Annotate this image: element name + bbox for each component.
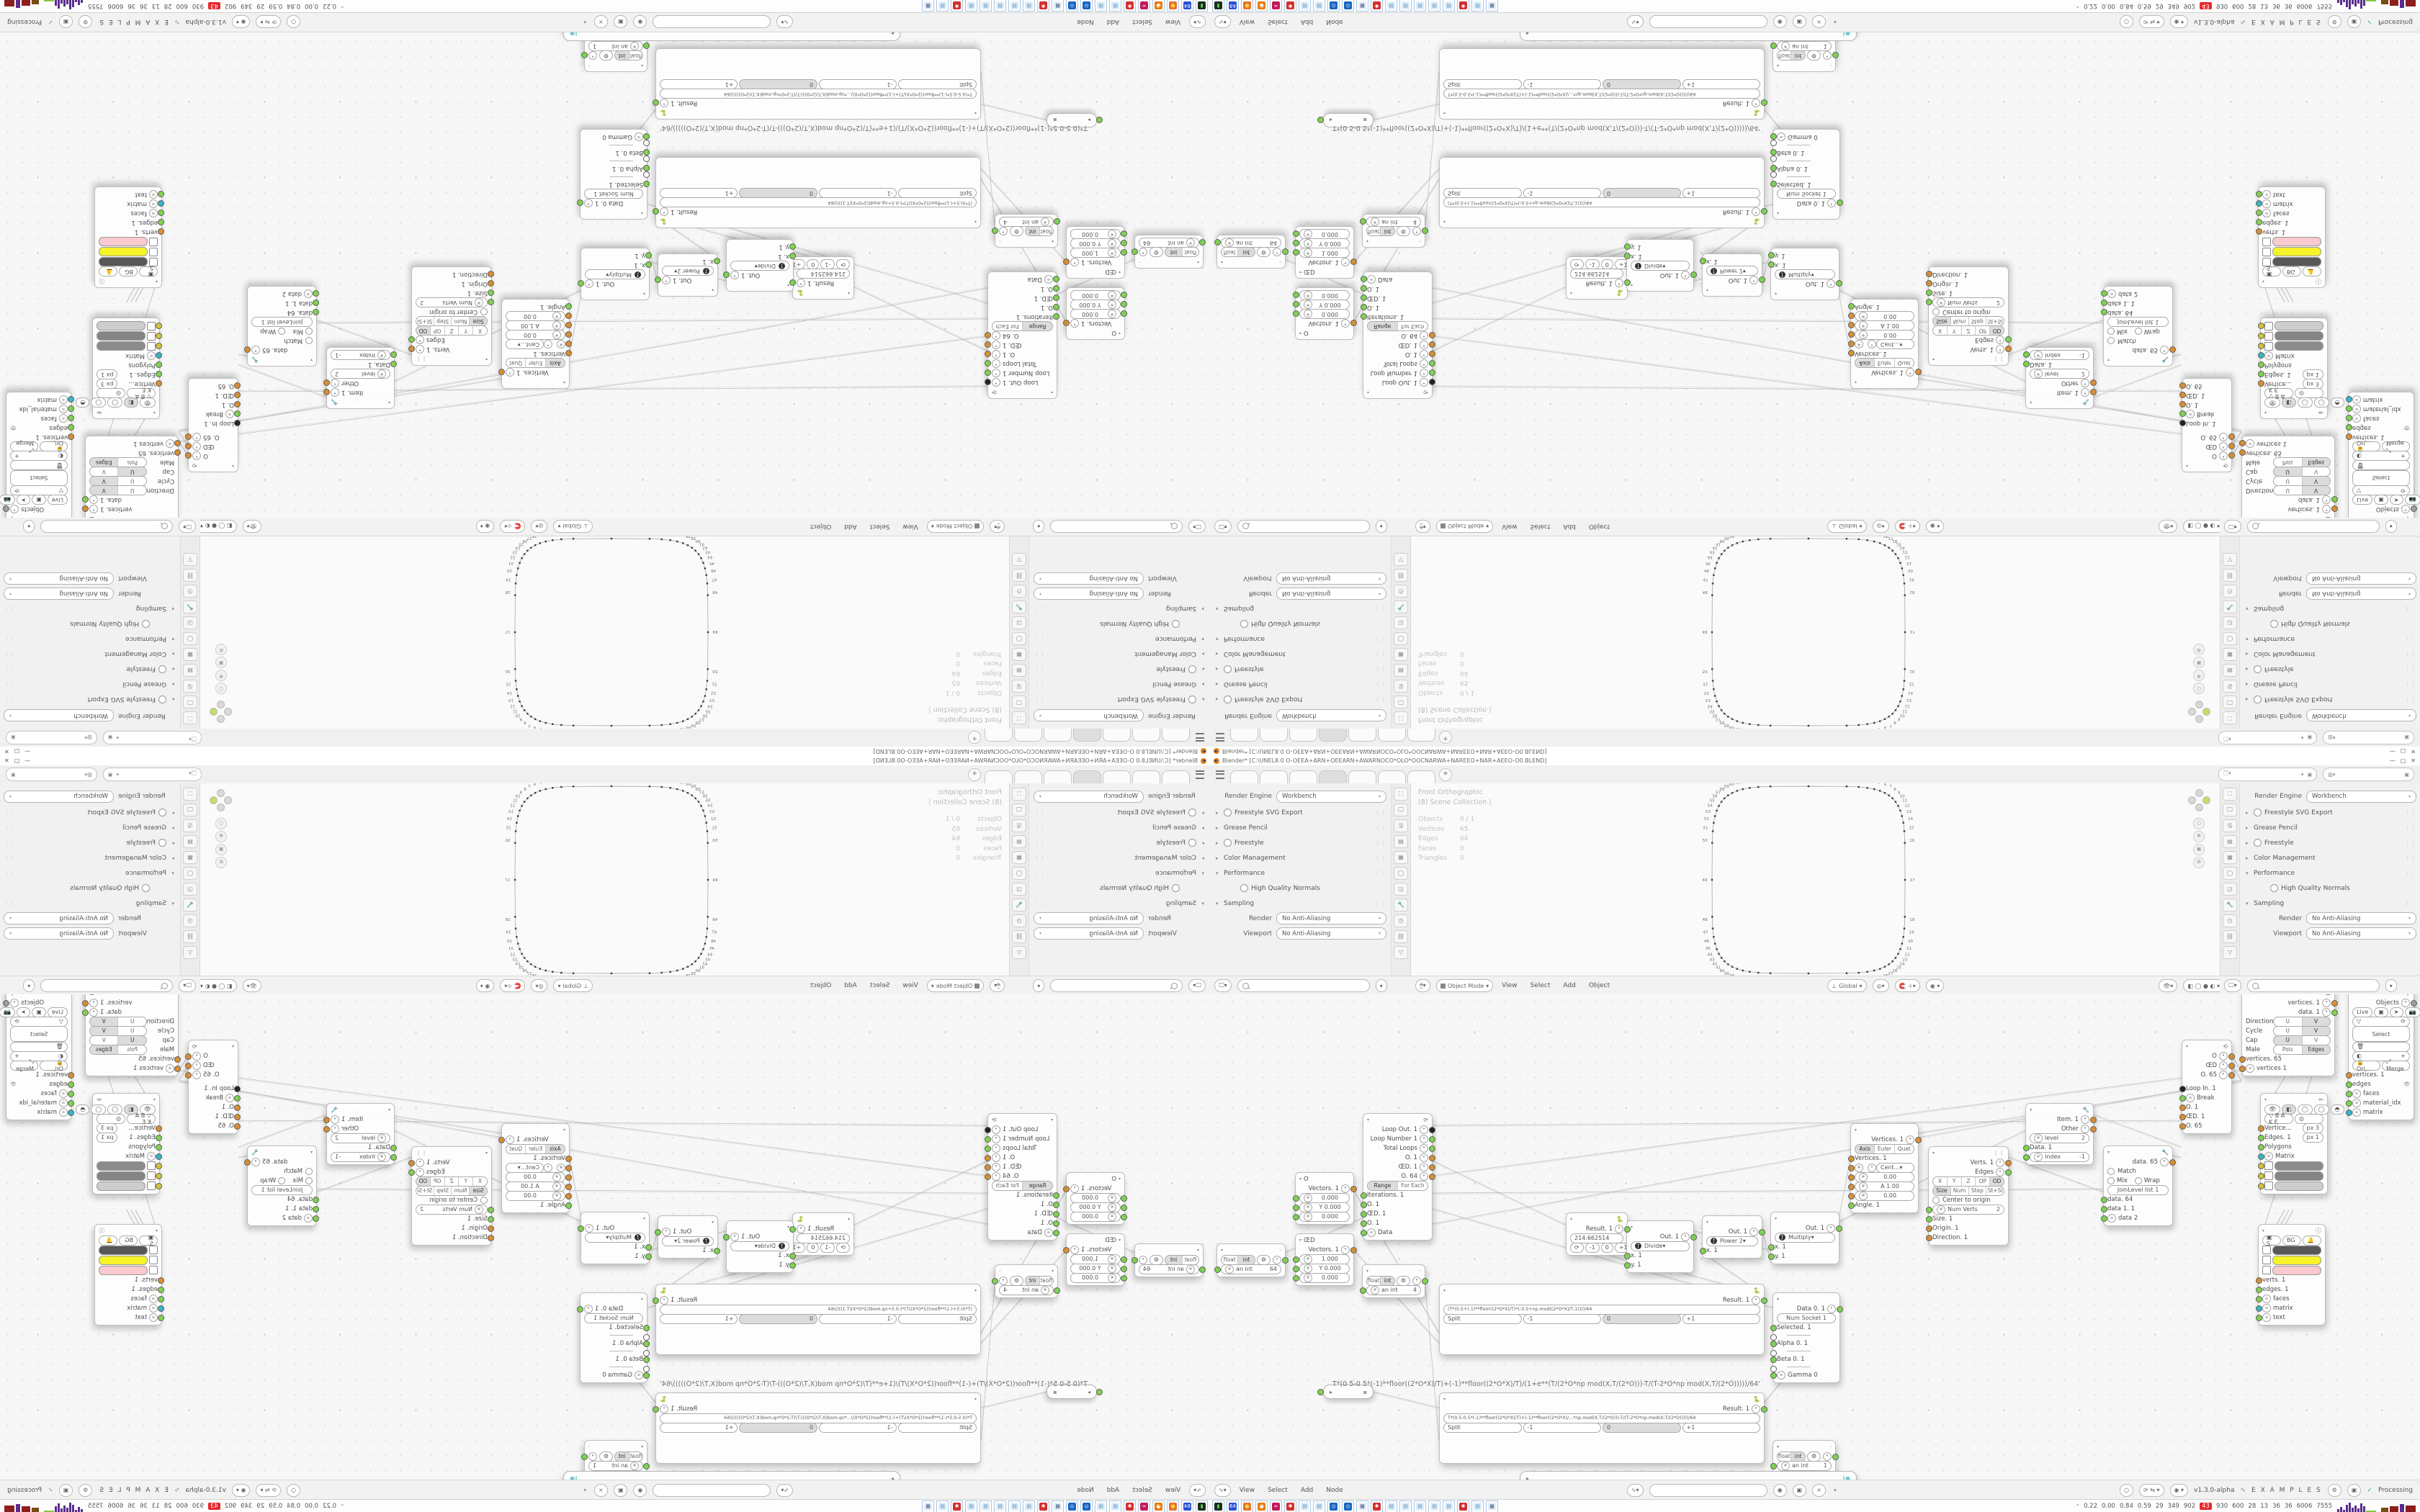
button--s-[interactable]: ▣ S...	[139, 1236, 158, 1246]
taskbar-app-2[interactable]: ●	[1167, 1500, 1179, 1512]
socket[interactable]	[644, 149, 650, 156]
socket-menu-button[interactable]: ▾	[1070, 1246, 1079, 1254]
socket[interactable]	[2346, 405, 2352, 412]
checkbox[interactable]	[1172, 620, 1180, 628]
editor-type-button[interactable]: 🖱▾	[1415, 979, 1430, 992]
antialiasing-dropdown[interactable]: No Anti-Aliasing▾	[1034, 588, 1144, 600]
toggle-option[interactable]: float	[1039, 228, 1053, 236]
socket-menu-button[interactable]: ▾	[416, 1158, 424, 1167]
properties-tab-icon[interactable]: ⛓	[2223, 569, 2237, 582]
button-0[interactable]: 0	[1603, 1314, 1681, 1324]
socket[interactable]	[2258, 1183, 2264, 1189]
socket-menu-button[interactable]: ▾	[1823, 1452, 1832, 1461]
socket-menu-button[interactable]: ▾	[1996, 1158, 2004, 1167]
vector-component-field[interactable]: #Y 0.000	[1299, 239, 1350, 249]
socket[interactable]	[2346, 424, 2352, 431]
button[interactable]: JoinLevel list 1	[251, 1185, 313, 1195]
checkbox[interactable]	[1932, 1197, 1940, 1204]
toggle-option[interactable]: X	[472, 1177, 487, 1186]
socket[interactable]	[644, 156, 650, 162]
vector-component-field[interactable]: #0.000	[1070, 310, 1121, 320]
toggle-option[interactable]: float	[1222, 1256, 1238, 1264]
toggle-option[interactable]: OD	[416, 1177, 430, 1186]
checkbox[interactable]	[1224, 839, 1232, 847]
vector-component-field[interactable]: #Y 0.000	[1070, 1264, 1121, 1274]
node-math-divide[interactable]: ▾Out. 1▾ƒDivide▾x. 1y. 1	[1626, 239, 1694, 292]
taskbar-app-11[interactable]: ✱	[1037, 1500, 1049, 1512]
operation-dropdown[interactable]: ƒDivide▾	[730, 1241, 789, 1251]
socket[interactable]	[156, 1135, 163, 1141]
properties-tab-strip[interactable]: ⛶🖵🖫▤▦◯◲🔧◷⛓▽	[1010, 783, 1029, 976]
socket[interactable]	[1770, 1350, 1777, 1356]
panel-header-freestyle-svg-export[interactable]: ▸Freestyle SVG Export⋮⋮	[2246, 805, 2416, 820]
properties-tab-icon[interactable]: ▤	[2223, 835, 2237, 848]
socket-menu-button[interactable]: ▾	[2322, 1008, 2331, 1017]
socket-menu-button[interactable]: ▾	[992, 1153, 1000, 1162]
socket[interactable]	[2101, 1197, 2107, 1203]
button-split[interactable]: Split	[899, 80, 977, 90]
number-field[interactable]: #an int1	[588, 42, 643, 52]
taskbar-app-16[interactable]: ▤	[1443, 0, 1455, 12]
properties-tab-icon[interactable]: ▦	[183, 851, 197, 864]
taskbar-app-14[interactable]: ▤	[994, 0, 1006, 12]
number-field[interactable]: #an int1	[1777, 1461, 1832, 1471]
node-list-item[interactable]: ▾🔧Item. 1▾Other▾#level2Data. 1#Index-1	[2025, 347, 2094, 409]
button--[interactable]: ◓	[76, 398, 89, 408]
toggle-option[interactable]: U	[2274, 1027, 2303, 1035]
socket[interactable]	[409, 1169, 416, 1176]
toggle-option[interactable]: U	[2274, 477, 2303, 486]
socket[interactable]	[985, 341, 992, 348]
number-field[interactable]: #level2	[331, 369, 390, 379]
socket[interactable]	[2179, 392, 2186, 398]
button--1[interactable]: -1	[1523, 80, 1602, 90]
taskbar-app-9[interactable]: ◎	[1342, 1500, 1354, 1512]
button-split[interactable]: Split	[1443, 189, 1522, 199]
socket[interactable]	[2179, 420, 2186, 426]
button--[interactable]: ◓	[76, 1104, 89, 1115]
socket[interactable]	[644, 1325, 650, 1331]
menu-view[interactable]: View	[1162, 1487, 1183, 1494]
color-swatch[interactable]	[2275, 342, 2323, 351]
vector-component-field[interactable]: #0.000	[1299, 1193, 1350, 1203]
socket-menu-button[interactable]: ▾	[992, 341, 1000, 350]
properties-tab-icon[interactable]: ◷	[1012, 914, 1026, 927]
socket[interactable]	[1770, 165, 1777, 171]
toggle-option[interactable]: Range	[1368, 323, 1398, 331]
toggle-option[interactable]: float	[1367, 1277, 1381, 1285]
select-button[interactable]: Select	[2352, 1026, 2410, 1042]
properties-tab-icon[interactable]: ◯	[183, 632, 197, 645]
checkbox[interactable]	[2107, 338, 2115, 345]
filter-options-button[interactable]: ▾	[1376, 979, 1387, 992]
button--merge[interactable]: ⤢ Merge	[10, 1061, 38, 1071]
vector-component-field[interactable]: #0.00	[506, 1191, 565, 1201]
menu-select[interactable]: Select	[867, 982, 893, 989]
button--[interactable]: 🔔	[99, 267, 117, 277]
antialiasing-dropdown[interactable]: No Anti-Aliasing▾	[4, 927, 114, 940]
vector-component-field[interactable]: #A 1.00	[506, 1182, 565, 1192]
socket[interactable]	[1132, 1257, 1139, 1264]
properties-tab-icon[interactable]: ▽	[2223, 553, 2237, 566]
node-viewer-index[interactable]: ▾ⓘ▣ S...BG🔔verts. 1edges. 1≡faces≡matrix…	[2258, 1224, 2326, 1326]
button--[interactable]: ◯	[2314, 398, 2329, 408]
properties-tab-icon[interactable]: ⛶	[2223, 711, 2237, 724]
node-switcher[interactable]: ▾Data 0. 1▾Num Socket 1Selected. 1Alpha …	[1773, 1292, 1840, 1383]
button-0[interactable]: 0	[1603, 80, 1681, 90]
panel-header-freestyle[interactable]: ▸Freestyle⋮⋮	[1034, 662, 1204, 677]
button--1[interactable]: -1	[819, 1423, 897, 1433]
operation-dropdown[interactable]: ƒDivide▾	[730, 261, 789, 271]
antialiasing-dropdown[interactable]: No Anti-Aliasing▾	[4, 572, 114, 585]
taskbar-app-7[interactable]: ▤	[1095, 1500, 1107, 1512]
vector-component-field[interactable]: #0.00	[1855, 1172, 1914, 1182]
socket[interactable]	[1422, 228, 1428, 234]
render-engine-dropdown[interactable]: Workbench▾	[1034, 791, 1144, 803]
collapsed-frame-strip[interactable]: ▸‖●	[1520, 1471, 1857, 1480]
taskbar-app-19[interactable]: ▦	[1486, 0, 1498, 12]
panel-header-sampling[interactable]: ▾Sampling⋮⋮	[1034, 601, 1204, 616]
socket[interactable]	[324, 1126, 331, 1133]
node-vector-in-o[interactable]: ▾OVectors. 1▾#0.000#Y 0.000#0.000	[1295, 1172, 1354, 1225]
workspace-tab[interactable]	[1289, 729, 1317, 742]
socket[interactable]	[1848, 341, 1855, 347]
socket-menu-button[interactable]: ▾	[1752, 208, 1760, 217]
delete-tree-button[interactable]: ×	[1812, 1484, 1826, 1497]
antialiasing-dropdown[interactable]: No Anti-Aliasing▾	[1034, 927, 1144, 940]
panel-header-performance[interactable]: ▾Performance⋮⋮	[2246, 865, 2416, 881]
render-engine-dropdown[interactable]: Workbench▾	[4, 710, 114, 722]
panel-header-sampling[interactable]: ▾Sampling⋮⋮	[1216, 601, 1386, 616]
toggle-option[interactable]: Size	[1933, 1187, 1951, 1195]
node-result-display[interactable]: ▾🐍Result. 1▾214.662514⟳-10+1	[792, 256, 854, 300]
properties-tab-icon[interactable]: ▤	[1012, 835, 1026, 848]
workspace-tab[interactable]	[1162, 770, 1190, 783]
socket[interactable]	[2331, 1009, 2338, 1016]
socket-menu-button[interactable]: ▾	[192, 1061, 201, 1070]
toggle-option[interactable]: Quat	[1895, 1145, 1914, 1153]
socket[interactable]	[2169, 346, 2176, 353]
taskbar-app-15[interactable]: ▤	[980, 0, 992, 12]
socket[interactable]	[2258, 1125, 2264, 1132]
toggle-option[interactable]: U	[2274, 468, 2303, 477]
socket[interactable]	[724, 1234, 730, 1241]
socket[interactable]	[1429, 1127, 1435, 1133]
workspace-tab[interactable]	[1014, 770, 1042, 783]
socket[interactable]	[566, 341, 573, 347]
taskbar-app-4[interactable]: ∞	[1138, 1500, 1150, 1512]
properties-tab-icon[interactable]: ▦	[1012, 648, 1026, 661]
socket[interactable]	[1915, 369, 1922, 375]
minimize-button[interactable]: —	[24, 748, 30, 755]
socket[interactable]	[1761, 1406, 1767, 1413]
panel-header-grease-pencil[interactable]: ▸Grease Pencil⋮⋮	[1034, 820, 1204, 835]
button--1[interactable]: -1	[1523, 189, 1602, 199]
socket[interactable]	[2256, 1296, 2262, 1302]
console-button[interactable]: ▣	[2347, 1484, 2362, 1497]
socket[interactable]	[1097, 117, 1103, 123]
button[interactable]: JoinLevel list 1	[2107, 1185, 2169, 1195]
socket[interactable]	[1848, 1184, 1855, 1190]
extra-tools-button[interactable]: ⚙	[2328, 1484, 2341, 1497]
menu-view[interactable]: View	[1499, 523, 1520, 530]
toggle-option[interactable]: OP	[1976, 327, 1990, 336]
socket[interactable]	[488, 1207, 495, 1213]
toggle-option[interactable]: For Each	[992, 323, 1022, 331]
taskbar-app-16[interactable]: ▤	[965, 1500, 977, 1512]
panel-header-freestyle-svg-export[interactable]: ▸Freestyle SVG Export⋮⋮	[1216, 805, 1386, 820]
socket-menu-button[interactable]: ▾	[1139, 1256, 1147, 1264]
editor-type-button[interactable]: 🖵▾	[179, 520, 196, 533]
properties-search-input[interactable]	[2247, 979, 2380, 992]
socket[interactable]	[1429, 379, 1435, 385]
panel-header-performance[interactable]: ▾Performance⋮⋮	[2246, 631, 2416, 647]
operation-dropdown[interactable]: ƒMultiply▾	[1775, 1233, 1835, 1243]
button-live[interactable]: Live	[48, 495, 68, 505]
socket[interactable]	[1926, 289, 1932, 296]
socket[interactable]	[655, 276, 662, 283]
node-objects-in[interactable]: ▾▽Objects▾Live▣➤📷▽⟳Select🗑◐+🔒 Ori...⤢ Me…	[6, 392, 72, 518]
socket[interactable]	[2023, 1154, 2030, 1161]
properties-tab-icon[interactable]: ◯	[1012, 632, 1026, 645]
vector-component-field[interactable]: #0.000	[1299, 310, 1350, 320]
collapsed-frame-strip[interactable]: ▸‖●	[563, 32, 900, 41]
socket[interactable]	[158, 200, 165, 207]
properties-tab-icon[interactable]: 🖫	[2223, 680, 2237, 693]
viewport-3d[interactable]: Front Orthographic (8) Scene Collection …	[200, 783, 1009, 976]
vector-component-field[interactable]: #0.000	[1299, 230, 1350, 240]
button-bg[interactable]: BG	[119, 267, 138, 277]
socket[interactable]	[175, 1066, 181, 1072]
menu-select[interactable]: Select	[1528, 982, 1554, 989]
properties-tab-icon[interactable]: ⛶	[183, 711, 197, 724]
node-vector-in-o[interactable]: ▾OVectors. 1▾#0.000#Y 0.000#0.000	[1066, 1172, 1125, 1225]
socket[interactable]	[1350, 1247, 1357, 1254]
node-vector-in-od[interactable]: ▾ŒDVectors. 1▾#1.000#Y 0.000#0.000	[1295, 226, 1354, 279]
socket-menu-button[interactable]: ▾	[1681, 1233, 1690, 1241]
high-quality-normals-row[interactable]: High Quality Normals	[2246, 616, 2416, 631]
socket-menu-button[interactable]: ▾	[506, 369, 514, 377]
properties-tab-strip[interactable]: ⛶🖵🖫▤▦◯◲🔧◷⛓▽	[1391, 783, 1410, 976]
button--1[interactable]: +1	[1682, 189, 1761, 199]
socket[interactable]	[1768, 1244, 1775, 1251]
socket[interactable]	[235, 1095, 241, 1102]
taskbar-app-19[interactable]: ▦	[922, 1500, 934, 1512]
socket[interactable]	[235, 382, 241, 389]
socket[interactable]	[2258, 380, 2264, 387]
toggle-option[interactable]: Edges	[2303, 1045, 2331, 1054]
socket[interactable]	[992, 1278, 999, 1284]
socket[interactable]	[653, 1406, 660, 1413]
checkbox[interactable]	[158, 665, 166, 673]
button--1[interactable]: -1	[1523, 1423, 1602, 1433]
toggle-option[interactable]: St+Si	[416, 318, 434, 326]
socket-menu-button[interactable]: ▾	[506, 1135, 514, 1144]
expand-tray-icon[interactable]: ⌃	[2075, 3, 2080, 9]
button--1[interactable]: -1	[1585, 260, 1600, 270]
properties-search-input[interactable]	[1237, 520, 1370, 533]
socket-menu-button[interactable]: ▾	[1420, 341, 1428, 350]
menu-view[interactable]: View	[1162, 19, 1183, 26]
toggle-option[interactable]: int	[1381, 1277, 1394, 1285]
toggle-option[interactable]: X	[1933, 1177, 1948, 1186]
button--[interactable]: ⟳	[836, 260, 850, 270]
toggle-option[interactable]: Axis	[1855, 359, 1875, 368]
button-split[interactable]: Split	[1443, 1314, 1522, 1324]
socket[interactable]	[1429, 1155, 1435, 1161]
socket[interactable]	[83, 496, 89, 503]
socket[interactable]	[985, 1127, 992, 1133]
toggle-ortho-button[interactable]: ⊞	[215, 644, 227, 655]
axis-gizmo[interactable]	[210, 701, 232, 723]
pin-icon[interactable]: ✦	[1833, 1488, 1837, 1493]
mode-selector[interactable]: Object Mode▾	[1436, 520, 1493, 533]
socket[interactable]	[2346, 1110, 2352, 1116]
socket[interactable]	[1350, 1186, 1357, 1192]
vector-component-field[interactable]: #0.000	[1070, 1273, 1121, 1283]
vector-component-field[interactable]: #1.000	[1070, 1254, 1121, 1264]
socket[interactable]	[578, 1225, 585, 1232]
socket[interactable]	[582, 52, 588, 58]
socket[interactable]	[566, 1202, 573, 1209]
color-swatch[interactable]	[99, 248, 148, 257]
button--1[interactable]: +1	[1682, 80, 1761, 90]
node-number-64[interactable]: ▾·floatint⚙▾#an int64	[1216, 235, 1286, 269]
node-switcher[interactable]: ▾Data 0. 1▾Num Socket 1Selected. 1Alpha …	[580, 1292, 647, 1383]
number-field[interactable]: #Index-1	[2030, 1152, 2089, 1162]
expand-tray-icon[interactable]: ⌃	[340, 1503, 345, 1510]
workspace-tab[interactable]	[1260, 770, 1288, 783]
socket[interactable]	[175, 1056, 181, 1063]
socket-menu-button[interactable]: ▾	[1273, 1256, 1281, 1264]
toggle-option[interactable]: Euler	[1875, 359, 1894, 368]
pan-tool-button[interactable]: ✥	[2193, 670, 2205, 681]
toggle-option[interactable]: U	[118, 487, 147, 495]
socket-menu-button[interactable]: ▾	[1752, 1405, 1760, 1413]
node-list-item[interactable]: ▾🔧Item. 1▾Other▾#level2Data. 1#Index-1	[2025, 1103, 2094, 1165]
toggle-option[interactable]: Range	[1368, 1182, 1398, 1190]
panel-header-grease-pencil[interactable]: ▸Grease Pencil⋮⋮	[4, 677, 174, 692]
high-quality-normals-row[interactable]: High Quality Normals	[4, 616, 174, 631]
socket[interactable]	[313, 300, 320, 306]
toggle-option[interactable]: float	[1182, 1256, 1198, 1264]
socket[interactable]	[1350, 320, 1357, 326]
menu-hamburger-icon[interactable]	[1196, 734, 1204, 742]
close-button[interactable]: ✕	[2411, 748, 2416, 755]
socket[interactable]	[1350, 258, 1357, 265]
socket[interactable]	[1770, 1334, 1777, 1341]
toggle-option[interactable]: U	[118, 1036, 147, 1045]
socket[interactable]	[1422, 1278, 1428, 1284]
socket-menu-button[interactable]: ▾	[1420, 360, 1428, 369]
socket-menu-button[interactable]: ▾	[1341, 258, 1350, 267]
toggle-option[interactable]: V	[90, 1017, 118, 1026]
panel-header-performance[interactable]: ▾Performance⋮⋮	[1034, 865, 1204, 881]
formula-input[interactable]: (T*(0.5+(-1)**floor((2*O*X)/T)*(-0.5+np.…	[660, 198, 977, 208]
snap-target-button[interactable]: ◎▾	[1873, 520, 1889, 533]
node-math-power2[interactable]: ▾Out. 1▾ƒPower 2▾x. 1	[1702, 1215, 1762, 1259]
snap-target-button[interactable]: ◎▾	[1873, 979, 1889, 992]
properties-tab-icon[interactable]: ▤	[183, 835, 197, 848]
socket[interactable]	[1121, 310, 1128, 317]
node-vector-in-od[interactable]: ▾ŒDVectors. 1▾#1.000#Y 0.000#0.000	[1066, 1233, 1125, 1286]
node-uv-connection[interactable]: ▾⚌vertices. 1▾data. 1▾DirectionUVCycleUV…	[2241, 436, 2335, 518]
socket-menu-button[interactable]: ▾	[2219, 433, 2228, 442]
button-split[interactable]: Split	[1443, 80, 1522, 90]
field[interactable]: 🗑	[2352, 1042, 2410, 1052]
view-layer-selector[interactable]: ▨▾▣	[6, 731, 97, 744]
value-pill[interactable]: px 3	[2303, 379, 2323, 390]
protect-tree-button[interactable]: ◉	[633, 16, 647, 29]
panel-header-grease-pencil[interactable]: ▸Grease Pencil⋮⋮	[2246, 677, 2416, 692]
taskbar-app-9[interactable]: ◎	[1066, 0, 1078, 12]
taskbar-app-12[interactable]: ▤	[1385, 0, 1397, 12]
socket[interactable]	[68, 424, 75, 431]
socket[interactable]	[1097, 1389, 1103, 1395]
color-swatch[interactable]	[99, 258, 148, 267]
socket[interactable]	[1848, 331, 1855, 338]
socket[interactable]	[790, 1253, 797, 1259]
properties-tab-icon[interactable]: 🖵	[183, 804, 197, 816]
toggle-option[interactable]: Axis	[545, 359, 565, 368]
number-field[interactable]: #Num Verts2	[1932, 1205, 2004, 1215]
node-math-multiply[interactable]: ▾Out. 1▾ƒMultiply▾x. 1y. 1	[1770, 1212, 1839, 1264]
socket[interactable]	[186, 1053, 192, 1060]
taskbar-app-13[interactable]: ▤	[1399, 1500, 1412, 1512]
formula-input[interactable]: T*(0.5-0.5*(-1)**floor((2*O*X)/T)+(-1)**…	[660, 89, 977, 99]
taskbar-app-8[interactable]: ◎	[1327, 1500, 1340, 1512]
checkbox[interactable]	[2254, 665, 2262, 673]
button--[interactable]: ➤	[2390, 1007, 2403, 1017]
update-mode-buttons[interactable]: ⟳ ⇆ ▾	[2139, 1484, 2164, 1497]
toggle-option[interactable]: Size	[469, 1187, 487, 1195]
toggle-option[interactable]: float	[1367, 228, 1381, 236]
properties-tab-icon[interactable]: 🔧	[1012, 899, 1026, 912]
add-workspace-button[interactable]: +	[1439, 768, 1452, 781]
button--[interactable]: ⟳	[1570, 1243, 1584, 1253]
button-live[interactable]: Live	[48, 1007, 68, 1017]
socket[interactable]	[68, 1081, 75, 1088]
socket-menu-button[interactable]: ▾	[1420, 379, 1428, 387]
value-pill[interactable]: px 1	[97, 370, 117, 380]
checkbox[interactable]	[2254, 809, 2262, 816]
taskbar-app-3[interactable]: ◕	[1152, 0, 1165, 12]
socket[interactable]	[1054, 1192, 1060, 1199]
workspace-tab[interactable]	[1103, 729, 1131, 742]
socket-menu-button[interactable]: ▾	[797, 279, 805, 288]
toggle-option[interactable]: V	[2303, 477, 2331, 486]
bake-mode-button[interactable]: ◉ ▾	[232, 16, 251, 29]
close-button[interactable]: ✕	[2411, 757, 2416, 764]
socket-menu-button[interactable]: ▾	[2219, 1061, 2228, 1070]
toggle-option[interactable]: int	[1381, 228, 1394, 236]
socket[interactable]	[488, 1225, 495, 1232]
socket[interactable]	[1361, 1192, 1367, 1199]
taskbar-app-0[interactable]: ▮	[1196, 0, 1208, 12]
button--[interactable]: ◎	[2295, 389, 2323, 399]
sverchok-node-editor[interactable]: ▾·floatint⚙▾#an int64▾OVectors. 1▾#0.000…	[0, 32, 1210, 518]
mode-selector[interactable]: Object Mode▾	[1436, 979, 1493, 992]
taskbar-app-15[interactable]: ▤	[1428, 0, 1440, 12]
expand-tray-icon[interactable]: ⌃	[340, 3, 345, 9]
toggle-option[interactable]: Range	[1022, 323, 1052, 331]
socket[interactable]	[1770, 140, 1777, 146]
properties-tab-icon[interactable]: ◯	[183, 867, 197, 880]
taskbar-app-10[interactable]: ▦	[1052, 0, 1064, 12]
button--s-[interactable]: ▣ S...	[2262, 1236, 2281, 1246]
menu-hamburger-icon[interactable]	[1216, 770, 1224, 779]
color-swatch[interactable]	[99, 1266, 148, 1275]
